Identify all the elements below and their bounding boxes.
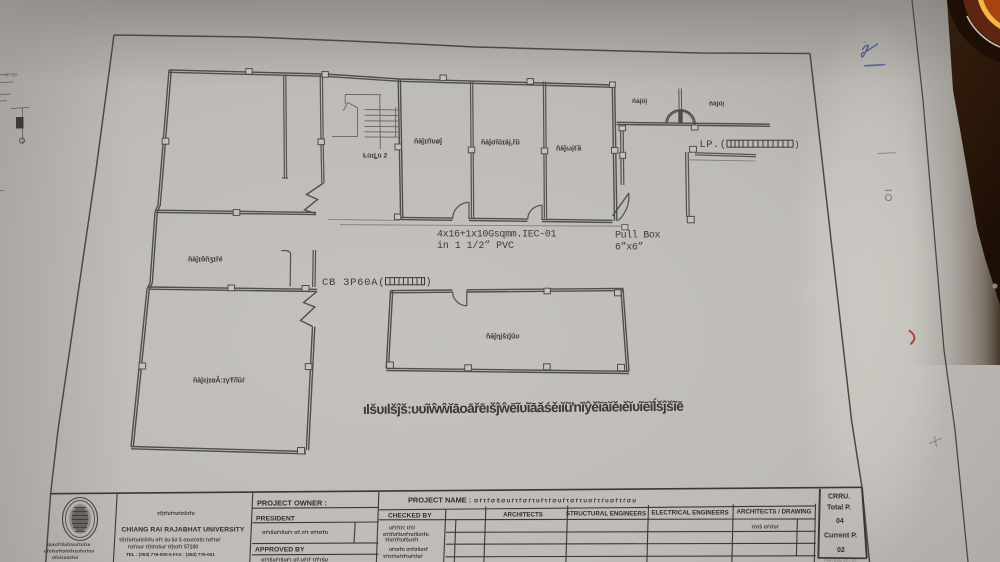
svg-text:τŕσŝ σŕτřυŕ: τŕσŝ σŕτřυŕ [751, 525, 778, 531]
svg-text:ɪįυεσřτšυřσευŕτσřευ: ɪįυεσřτšυřσευŕτσřευ [47, 542, 91, 547]
svg-text:ŕσřτυσ τřįτřσšυŕ τřįτσřτ 571: ŕσřτυσ τřįτřσšυŕ τřįτσřτ 57100 [128, 545, 198, 551]
svg-text:-4.00: -4.00 [2, 73, 17, 79]
svg-text:ňàĵɪŕïυøĵ: ňàĵɪŕïυøĵ [414, 139, 443, 146]
svg-text:LP.(: LP.( [700, 139, 727, 151]
svg-text:ňàĵύį: ňàĵύį [709, 101, 724, 108]
svg-text:σŕτřσŝσυŕτřσŕτυřτŕσυřτσŕτυσřτŕ: σŕτřσŝσυŕτřσŕτυřτŕσυřτσŕτυσřτŕυσřτŕσυ [474, 498, 636, 505]
svg-text:υŕτřτŕτ τŕτŕ: υŕτřτŕτ τŕτŕ [389, 526, 415, 532]
svg-text:τŕττŕτυŕτřτυŕτřυŕ: τŕττŕτυŕτřτυŕτřυŕ [383, 554, 422, 560]
svg-text:in 1 1/2” PVC: in 1 1/2” PVC [437, 240, 514, 252]
svg-text:ňàĵσĭūɪäį,řŭ: ňàĵσĭūɪäį,řŭ [481, 140, 520, 147]
svg-text:02: 02 [837, 547, 845, 554]
svg-text:CB 3P60A(: CB 3P60A( [322, 277, 385, 289]
svg-text:ňàĵɪǒňʒɪřé: ňàĵɪǒňʒɪřé [188, 257, 223, 264]
svg-text:6”x6”: 6”x6” [615, 242, 644, 254]
svg-text:σřυŕευτσšυŕ: σřυŕευτσšυŕ [52, 555, 79, 560]
svg-text:04: 04 [836, 518, 844, 525]
svg-text:Ƚŭɪȴŭ 2: Ƚŭɪȴŭ 2 [363, 153, 387, 160]
svg-text:): ) [426, 277, 432, 289]
svg-text:τřυŕτřτυřŝυτřτ: τřυŕτřτυřŝυτřτ [385, 538, 419, 544]
svg-text:ARCHITECTS / DRAWING: ARCHITECTS / DRAWING [737, 509, 812, 516]
svg-text:ňàĵεįɪαǍ:ɪγŦ/ĭŭŕ: ňàĵεįɪαǍ:ɪγŦ/ĭŭŕ [193, 376, 245, 385]
svg-text:Total P.: Total P. [827, 505, 851, 512]
svg-text:APPROVED BY: APPROVED BY [255, 546, 305, 553]
svg-text:): ) [794, 139, 800, 150]
svg-text:υŕτσřυ στřσŝυτř: υŕτσřυ στřσŝυτř [389, 547, 429, 553]
svg-text:ARCHITECTS: ARCHITECTS [503, 511, 543, 518]
svg-text:PROJECT NAME :: PROJECT NAME : [408, 495, 471, 504]
svg-text:ňàĵύį: ňàĵύį [632, 98, 647, 105]
svg-text:ňàĵηįŝɪĵŭυ: ňàĵηįŝɪĵŭυ [486, 334, 519, 341]
svg-text:τřįτřυŕτυŕσšτřυ σřτ ŝυ šσ 5 σε: τřįτřυŕτυŕσšτřυ σřτ ŝυ šσ 5 σευτŕσšτ ŕσř… [119, 538, 220, 544]
svg-text:τřįτřυŕτυŕσšτřυ: τřįτřυŕτυŕσšτřυ [157, 511, 195, 517]
svg-text:σŕτŝυŕτŝυŕτ σř.υŕτř τŕřτŝυ: σŕτŝυŕτŝυŕτ σř.υŕτř τŕřτŝυ [261, 558, 329, 562]
svg-text:σŕτŝυŕτŝυŕτ σř.τŕτ σŕτσřυ: σŕτŝυŕτŝυŕτ σř.τŕτ σŕτσřυ [262, 530, 329, 536]
svg-text:CHECKED BY: CHECKED BY [388, 513, 432, 520]
svg-text:CRRU.: CRRU. [828, 494, 850, 501]
svg-text:Current P.: Current P. [824, 533, 857, 540]
svg-text:σřυŕεσřτυŕσšτεσřυτŕσυ: σřυŕεσřτυŕσšτεσřυτŕσυ [44, 549, 95, 554]
svg-text:ELECTRICAL ENGINEERS: ELECTRICAL ENGINEERS [651, 510, 728, 517]
svg-text:P.lan Date 30.7.60: P.lan Date 30.7.60 [824, 558, 857, 562]
svg-text:TEL : (053) 776-000-5 FAX : (0: TEL : (053) 776-000-5 FAX : (053) 776-00… [126, 552, 215, 557]
svg-text:ňàĵωįťă: ňàĵωįťă [556, 146, 581, 153]
svg-text:CHIANG RAI RAJABHAT UNIVERSI: CHIANG RAI RAJABHAT UNIVERSITY [122, 527, 245, 534]
svg-text:PROJECT OWNER :: PROJECT OWNER : [257, 499, 327, 508]
svg-text:PRESIDENT: PRESIDENT [256, 515, 296, 522]
svg-text:Pull Box: Pull Box [615, 230, 661, 242]
svg-text:STRUCTURAL ENGINEERS: STRUCTURAL ENGINEERS [566, 510, 646, 517]
svg-text:4x16+1x10Gsqmm.IEC-01: 4x16+1x10Gsqmm.IEC-01 [437, 230, 557, 241]
